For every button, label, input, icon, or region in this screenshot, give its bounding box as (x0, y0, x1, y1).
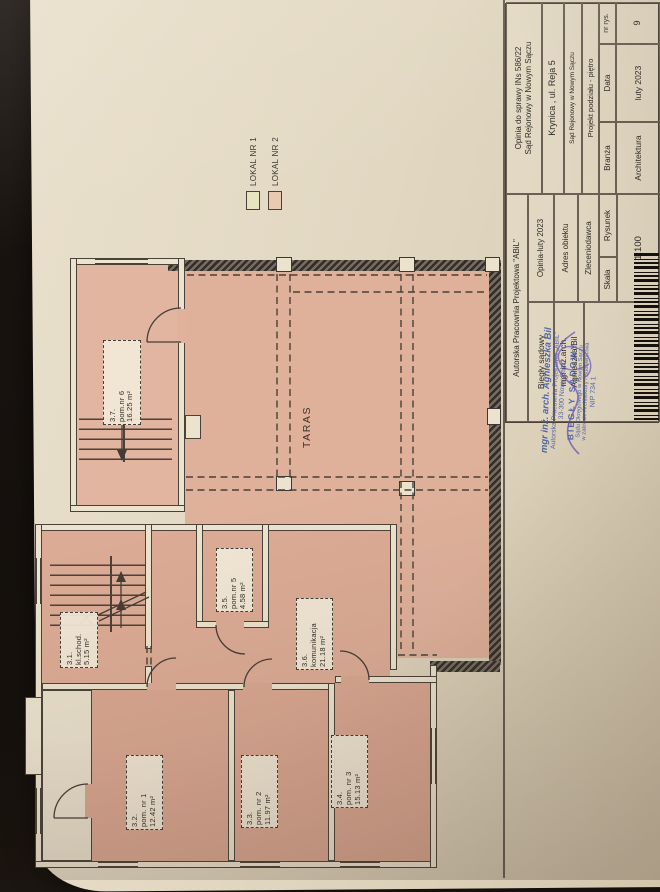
room-label-3-5: 3.5. pom.nr 5 4.58 m² (216, 548, 253, 612)
room-area: 11.97 m² (264, 758, 273, 825)
arrow-head (116, 571, 126, 582)
door-arc (54, 784, 88, 818)
taras-label: TARAS (297, 398, 317, 456)
scanned-floor-plan: 3.7. pom.nr 6 16.25 m² TARAS 3.5. pom.nr… (0, 0, 660, 880)
room-label-3-3: 3.3. pom. nr 2 11.97 m² (241, 755, 278, 828)
room-area: 21.18 m² (319, 601, 328, 667)
legend-label: LOKAL NR 1 (249, 137, 258, 186)
legend: LOKAL NR 1 LOKAL NR 2 (242, 120, 288, 210)
room-label-3-7: 3.7. pom.nr 6 16.25 m² (103, 340, 141, 425)
legend-swatch-lokal-1 (246, 191, 260, 210)
room-label-3-2: 3.2. pom. nr 1 12.42 m² (126, 755, 163, 830)
room-label-3-4: 3.4. pom. nr 3 15.13 m² (331, 735, 368, 808)
legend-label: LOKAL NR 2 (271, 137, 280, 186)
signature (541, 298, 621, 484)
legend-item-lokal-1: LOKAL NR 1 (242, 120, 264, 210)
arrow-head (116, 599, 126, 610)
dashed-opening (147, 646, 151, 668)
room-area: 5.15 m² (83, 615, 92, 665)
room-label-3-1: 3.1. kl.schod. 5.15 m² (60, 612, 98, 668)
room-label-3-6: 3.6. komunikacja 21.18 m² (296, 598, 333, 670)
door-arc (216, 625, 245, 654)
room-area: 4.58 m² (239, 551, 248, 609)
legend-swatch-lokal-2 (268, 191, 282, 210)
door-arc (147, 308, 181, 342)
door-arc (244, 659, 272, 687)
room-area: 16.25 m² (126, 343, 135, 422)
room-area: 12.42 m² (149, 758, 158, 827)
arrow-head (117, 450, 127, 461)
door-arc (340, 651, 369, 680)
taras-text: TARAS (301, 406, 313, 448)
room-area: 15.13 m² (354, 738, 363, 805)
court-expert-stamp: mgr inż. arch. Agnieszka Bil Autorska Pr… (541, 298, 621, 484)
legend-item-lokal-2: LOKAL NR 2 (264, 120, 286, 210)
